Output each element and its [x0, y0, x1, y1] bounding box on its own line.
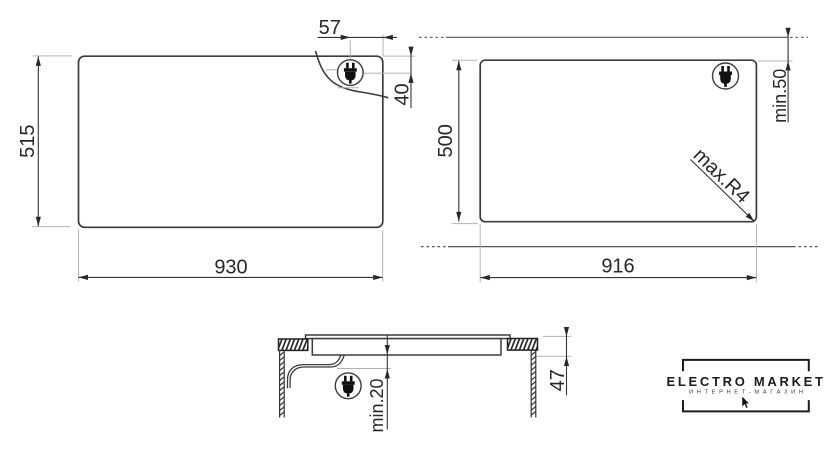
svg-text:ELECTRO MARKET: ELECTRO MARKET	[667, 374, 827, 389]
svg-text:ИНТЕРНЕТ-МАГАЗИН: ИНТЕРНЕТ-МАГАЗИН	[689, 389, 805, 395]
svg-text:916: 916	[601, 256, 634, 278]
svg-text:min.50: min.50	[770, 69, 790, 123]
svg-text:500: 500	[435, 124, 457, 157]
svg-text:930: 930	[214, 257, 247, 279]
svg-text:57: 57	[319, 17, 341, 39]
svg-text:min.20: min.20	[367, 378, 387, 432]
svg-text:40: 40	[391, 83, 413, 105]
svg-text:47: 47	[547, 369, 569, 391]
svg-text:515: 515	[17, 125, 39, 158]
